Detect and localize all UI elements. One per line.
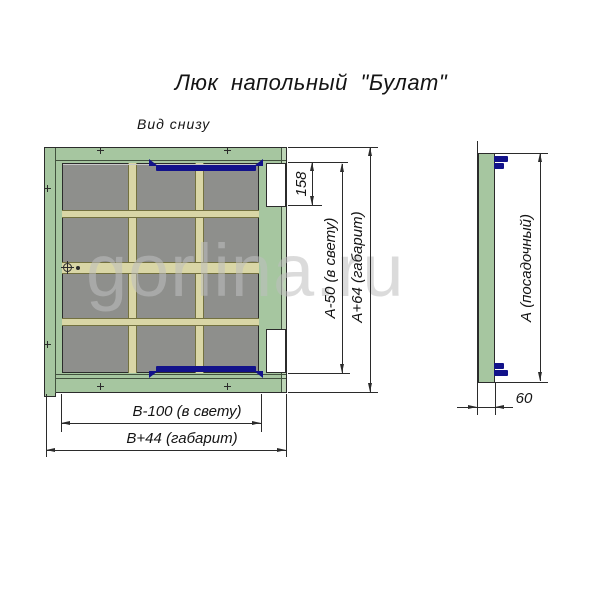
screw-mark xyxy=(44,185,51,192)
dim-seat-size: А (посадочный) xyxy=(518,193,536,343)
rib-beam-horizontal-1 xyxy=(62,210,259,218)
side-wall-line xyxy=(477,141,478,415)
extension-line xyxy=(288,147,378,148)
extension-line xyxy=(495,382,548,383)
extension-line xyxy=(495,383,496,415)
dimension-line-width-clear xyxy=(61,423,261,424)
dimension-line-width-overall xyxy=(46,450,286,451)
frame-seam-left xyxy=(55,148,56,393)
rivet-dot xyxy=(76,266,80,270)
screw-mark xyxy=(97,383,104,390)
rib-beam-horizontal-middle xyxy=(62,262,259,274)
arrowhead xyxy=(368,383,372,392)
side-hinge-bottom xyxy=(494,363,504,369)
arrowhead xyxy=(538,153,542,162)
screw-mark xyxy=(224,383,231,390)
side-hinge-bottom xyxy=(494,370,508,376)
frame-seam-bottom1 xyxy=(55,374,286,375)
bottom-view-label: Вид снизу xyxy=(137,116,210,132)
arrowhead xyxy=(340,364,344,373)
dimension-line-height-overall xyxy=(370,148,371,392)
arrowhead xyxy=(368,147,372,156)
dim-width-overall: В+44 (габарит) xyxy=(82,430,282,448)
screw-mark xyxy=(224,147,231,154)
center-axis-mark xyxy=(63,263,72,272)
dim-hinge-offset: 158 xyxy=(293,162,311,206)
arrowhead xyxy=(340,163,344,172)
screw-mark xyxy=(97,147,104,154)
extension-line xyxy=(61,394,62,432)
frame-seam-bottom2 xyxy=(55,378,286,379)
arrowhead xyxy=(277,448,286,452)
drawing-canvas: Люк напольный "Булат" Вид снизу 158 А-50… xyxy=(0,0,600,600)
extension-line xyxy=(288,392,378,393)
extension-line xyxy=(288,373,350,374)
dim-height-clear: А-50 (в свету) xyxy=(322,203,340,333)
arrowhead xyxy=(61,421,70,425)
latch-bar-bottom xyxy=(156,366,256,372)
arrowhead xyxy=(46,448,55,452)
dim-width-clear: В-100 (в свету) xyxy=(87,403,287,421)
dim-height-overall: А+64 (габарит) xyxy=(349,202,367,332)
hinge-cutout-top xyxy=(266,163,286,207)
screw-mark xyxy=(44,341,51,348)
drawing-title: Люк напольный "Булат" xyxy=(146,70,476,96)
latch-bar-top xyxy=(156,165,256,171)
dim-depth: 60 xyxy=(510,390,538,408)
dimension-line-height-clear xyxy=(342,164,343,373)
arrowhead xyxy=(252,421,261,425)
dimension-line-seat xyxy=(540,154,541,381)
arrowhead xyxy=(495,405,504,409)
frame-seam-top xyxy=(55,160,286,161)
arrowhead xyxy=(538,372,542,381)
arrowhead xyxy=(468,405,477,409)
side-frame-bar xyxy=(478,153,495,383)
side-hinge-top xyxy=(494,156,508,162)
side-hinge-top xyxy=(494,163,504,169)
dimension-line-depth xyxy=(457,407,513,408)
hinge-cutout-bottom xyxy=(266,329,286,373)
rib-beam-horizontal-3 xyxy=(62,318,259,326)
